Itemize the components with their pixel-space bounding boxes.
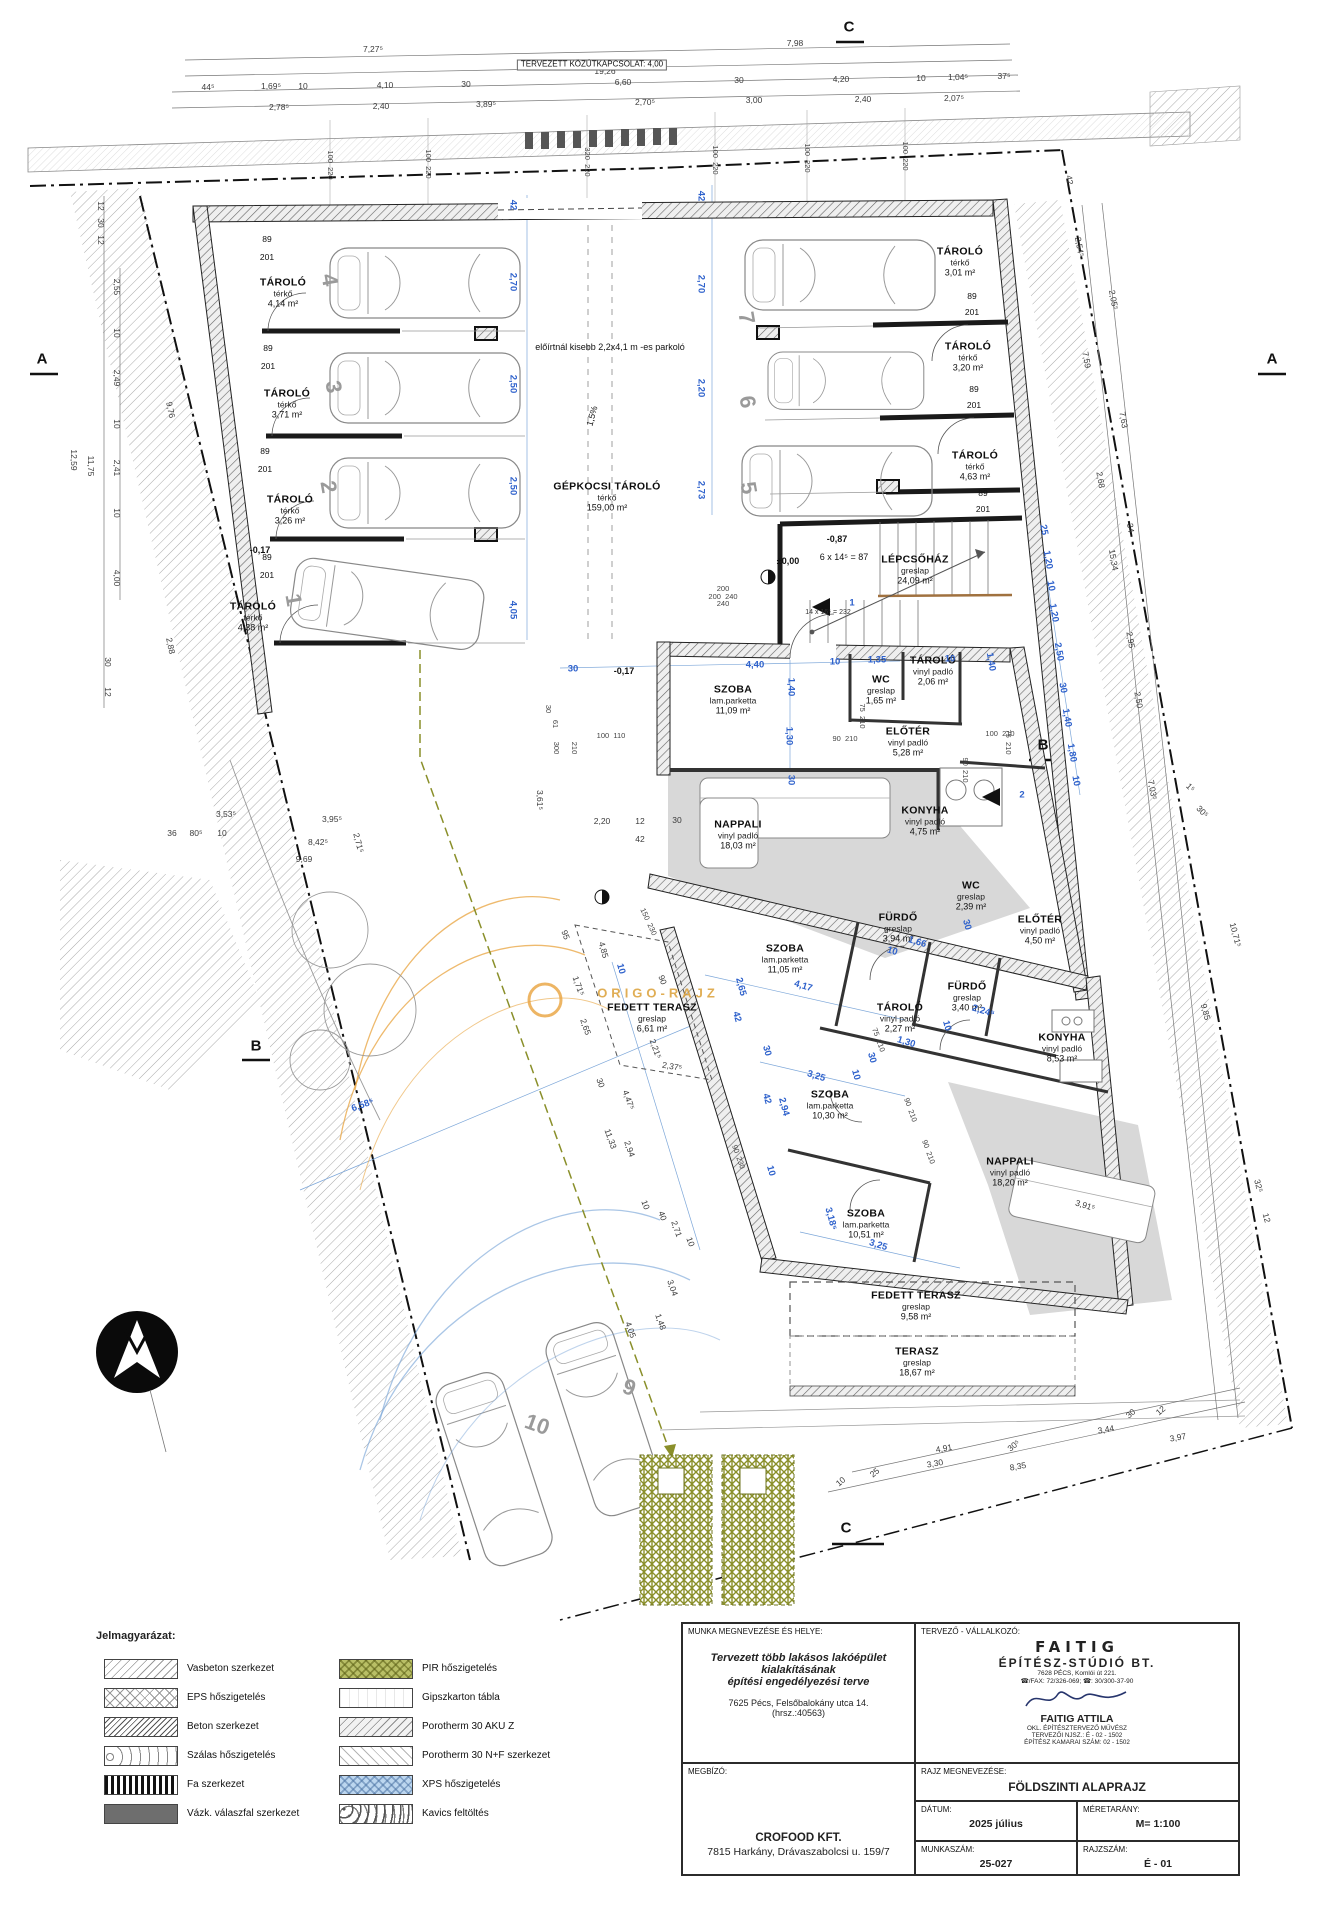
drawing-label: RAJZ MEGNEVEZÉSE: bbox=[921, 1767, 1233, 1776]
scale-value: M= 1:100 bbox=[1083, 1818, 1233, 1830]
eps-swatch-icon bbox=[104, 1688, 178, 1708]
legend-item-label: PIR hőszigetelés bbox=[422, 1663, 497, 1674]
client-label: MEGBÍZÓ: bbox=[688, 1767, 909, 1776]
architect-reg1: TERVEZŐI NJSZ.: É - 02 - 1502 bbox=[921, 1732, 1233, 1739]
stairwell bbox=[780, 518, 1022, 648]
vaz-swatch-icon bbox=[104, 1804, 178, 1824]
date-label: DÁTUM: bbox=[921, 1805, 1071, 1814]
legend-item-label: Porotherm 30 AKU Z bbox=[422, 1721, 514, 1732]
studio-address: 7628 PÉCS, Komlói út 221. bbox=[921, 1670, 1233, 1677]
legend-item: Beton szerkezet bbox=[104, 1712, 299, 1741]
legend-item: Kavics feltöltés bbox=[339, 1799, 550, 1828]
xps-swatch-icon bbox=[339, 1775, 413, 1795]
legend-item: XPS hőszigetelés bbox=[339, 1770, 550, 1799]
legend-item-label: Szálas hőszigetelés bbox=[187, 1750, 275, 1761]
studio-name: ÉPÍTÉSZ-STÚDIÓ BT. bbox=[921, 1656, 1233, 1670]
architect-title: OKL. ÉPÍTÉSZTERVEZŐ MŰVÉSZ bbox=[921, 1725, 1233, 1732]
designer-label: TERVEZŐ - VÁLLALKOZÓ: bbox=[921, 1627, 1233, 1636]
road bbox=[28, 86, 1240, 208]
legend: Jelmagyarázat: Vasbeton szerkezetEPS hős… bbox=[96, 1630, 566, 1652]
legend-item: EPS hőszigetelés bbox=[104, 1683, 299, 1712]
client-address: 7815 Harkány, Drávaszabolcsi u. 159/7 bbox=[688, 1846, 909, 1858]
legend-item-label: Fa szerkezet bbox=[187, 1779, 244, 1790]
gipsz-swatch-icon bbox=[339, 1688, 413, 1708]
legend-item: Vázk. válaszfal szerkezet bbox=[104, 1799, 299, 1828]
job-value: 25-027 bbox=[921, 1858, 1071, 1870]
work-title: Tervezett több lakásos lakóépület kialak… bbox=[688, 1652, 909, 1688]
sheet-value: É - 01 bbox=[1083, 1858, 1233, 1870]
legend-item: Porotherm 30 N+F szerkezet bbox=[339, 1741, 550, 1770]
title-block: MUNKA MEGNEVEZÉSE ÉS HELYE: Tervezett tö… bbox=[681, 1622, 1240, 1876]
studio-logo: FAITIG bbox=[921, 1638, 1233, 1656]
kavics-swatch-icon bbox=[339, 1804, 413, 1824]
planting-beds bbox=[640, 1455, 794, 1605]
job-label: MUNKASZÁM: bbox=[921, 1845, 1071, 1854]
studio-phone: ☎/FAX: 72/326-069; ☎: 30/300-37-90 bbox=[921, 1677, 1233, 1685]
legend-item-label: EPS hőszigetelés bbox=[187, 1692, 265, 1703]
driveway-guide bbox=[420, 650, 676, 1458]
legend-item-label: XPS hőszigetelés bbox=[422, 1779, 500, 1790]
poroaku-swatch-icon bbox=[339, 1717, 413, 1737]
work-label: MUNKA MEGNEVEZÉSE ÉS HELYE: bbox=[688, 1627, 909, 1636]
poronf-swatch-icon bbox=[339, 1746, 413, 1766]
drawing-name: FÖLDSZINTI ALAPRAJZ bbox=[921, 1780, 1233, 1794]
legend-item-label: Vázk. válaszfal szerkezet bbox=[187, 1808, 299, 1819]
architect-name: FAITIG ATTILA bbox=[921, 1713, 1233, 1725]
legend-item-label: Beton szerkezet bbox=[187, 1721, 259, 1732]
scale-label: MÉRETARÁNY: bbox=[1083, 1805, 1233, 1814]
legend-title: Jelmagyarázat: bbox=[96, 1630, 566, 1642]
vasbeton-swatch-icon bbox=[104, 1659, 178, 1679]
legend-item-label: Kavics feltöltés bbox=[422, 1808, 489, 1819]
legend-right-column: PIR hőszigetelésGipszkarton táblaPorothe… bbox=[339, 1654, 550, 1828]
legend-item: Szálas hőszigetelés bbox=[104, 1741, 299, 1770]
date-value: 2025 július bbox=[921, 1818, 1071, 1830]
legend-item-label: Porotherm 30 N+F szerkezet bbox=[422, 1750, 550, 1761]
signature bbox=[1022, 1686, 1132, 1712]
legend-item: Gipszkarton tábla bbox=[339, 1683, 550, 1712]
floor-plan-sheet: { "colors":{"blue_dim":"#2f62cc","wall":… bbox=[0, 0, 1320, 1920]
north-arrow-icon bbox=[96, 1311, 178, 1452]
legend-item-label: Gipszkarton tábla bbox=[422, 1692, 500, 1703]
szalas-swatch-icon bbox=[104, 1746, 178, 1766]
legend-item: Porotherm 30 AKU Z bbox=[339, 1712, 550, 1741]
legend-left-column: Vasbeton szerkezetEPS hőszigetelésBeton … bbox=[104, 1654, 299, 1828]
architect-reg2: ÉPÍTÉSZ KAMARAI SZÁM: 02 - 1502 bbox=[921, 1739, 1233, 1746]
legend-item: PIR hőszigetelés bbox=[339, 1654, 550, 1683]
legend-item-label: Vasbeton szerkezet bbox=[187, 1663, 274, 1674]
pir-swatch-icon bbox=[339, 1659, 413, 1679]
sheet-label: RAJZSZÁM: bbox=[1083, 1845, 1233, 1854]
work-address: 7625 Pécs, Felsőbalokány utca 14. (hrsz.… bbox=[688, 1698, 909, 1718]
legend-item: Vasbeton szerkezet bbox=[104, 1654, 299, 1683]
legend-item: Fa szerkezet bbox=[104, 1770, 299, 1799]
client-name: CROFOOD KFT. bbox=[688, 1832, 909, 1844]
fa-swatch-icon bbox=[104, 1775, 178, 1795]
beton-swatch-icon bbox=[104, 1717, 178, 1737]
